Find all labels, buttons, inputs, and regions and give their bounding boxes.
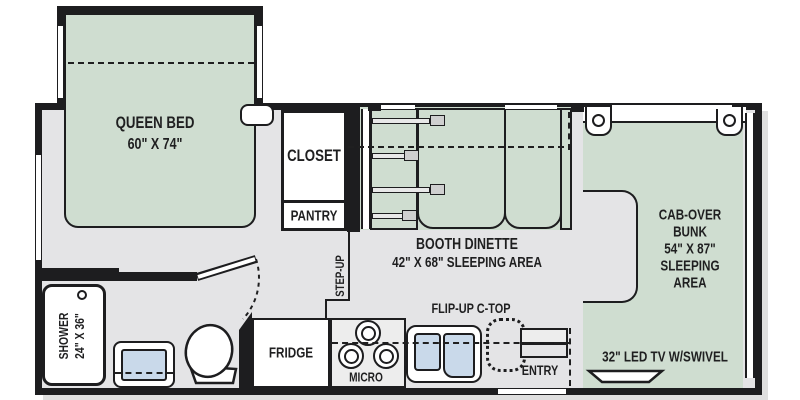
rv-floor-plan: QUEEN BED 60" X 74" CLOSET PANTRY STEP-U… [0, 0, 800, 400]
table-support-cap [430, 184, 445, 195]
closet-label: CLOSET [287, 146, 341, 166]
pantry-label: PANTRY [291, 208, 338, 225]
shower-label: SHOWER 24" X 36" [56, 313, 88, 360]
nightstand-cabinet [240, 104, 274, 126]
step-edge [348, 232, 350, 300]
fridge-label: FRIDGE [269, 345, 313, 362]
micro-label: MICRO [349, 370, 383, 385]
wall-cap [368, 103, 381, 111]
dinette-seat-center [417, 108, 506, 229]
counter-dashed-divider [404, 320, 406, 386]
dinette-edge [560, 108, 572, 230]
entry-door-opening [498, 389, 566, 394]
entry-step [520, 343, 568, 358]
table-support-cap [402, 210, 417, 221]
table-support-cap [430, 115, 445, 126]
sink-dashed-line [115, 372, 173, 374]
burner-icon [338, 343, 364, 369]
bunk-edge-dashed [568, 112, 570, 150]
step-edge [325, 299, 327, 319]
slideout-window-right [257, 26, 262, 98]
kitchen-sink-basin-left [414, 333, 441, 371]
window [36, 155, 41, 260]
bunk-post-icon [592, 114, 605, 127]
step-up-label: STEP-UP [333, 255, 347, 297]
dinette-seat-right [504, 108, 562, 229]
entry-label: ENTRY [522, 362, 559, 378]
burner-icon [373, 343, 399, 369]
table-support-bar [372, 213, 404, 219]
bathroom-wall [118, 272, 197, 281]
booth-dinette-label: BOOTH DINETTE 42" X 68" SLEEPING AREA [392, 236, 542, 272]
table-support-cap [404, 150, 419, 161]
step-edge [325, 299, 350, 301]
entry-dashed-line [569, 328, 571, 386]
counter-dashed-line [332, 342, 570, 344]
cab-windshield-window [612, 105, 732, 109]
bed-pillow-line [68, 62, 254, 64]
slideout-travel-line [348, 146, 564, 148]
tv-label: 32" LED TV W/SWIVEL [602, 349, 728, 366]
table-support-bar [372, 153, 406, 159]
table-support-bar [372, 187, 430, 193]
queen-bed-label: QUEEN BED 60" X 74" [116, 112, 195, 156]
side-window-strip [745, 113, 755, 378]
closet-side-wall [347, 103, 360, 232]
slideout-window-left [58, 26, 63, 98]
bunk-post-icon [723, 114, 736, 127]
bathroom-sink-basin [121, 349, 167, 381]
bathroom-wall [36, 268, 119, 281]
kitchen-sink-basin-right [443, 333, 475, 378]
shower-head-icon [77, 290, 87, 300]
wall-cap [571, 103, 584, 112]
cab-over-bunk-label: CAB-OVER BUNK 54" X 87" SLEEPING AREA [659, 207, 721, 292]
table-support-bar [372, 118, 430, 124]
window [505, 105, 557, 109]
cab-walkway-notch [583, 190, 638, 303]
flip-up-ctop-label: FLIP-UP C-TOP [431, 300, 510, 316]
